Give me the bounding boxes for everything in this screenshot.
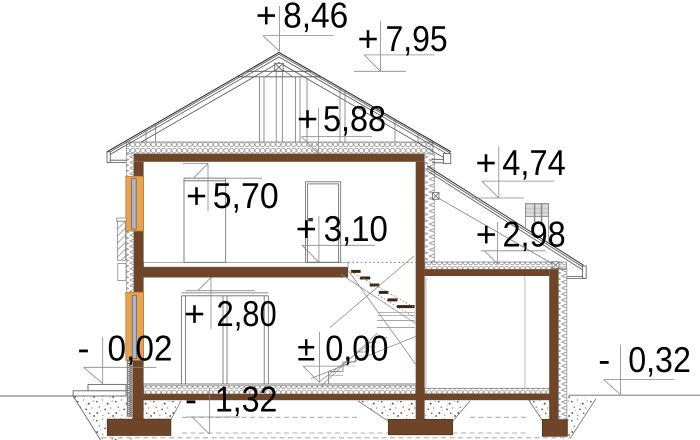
svg-text:+: + <box>358 18 379 59</box>
svg-text:0,00: 0,00 <box>325 327 388 368</box>
svg-text:+: + <box>184 293 205 334</box>
svg-text:5,88: 5,88 <box>323 98 386 139</box>
svg-text:1,32: 1,32 <box>215 379 277 420</box>
svg-text:-: - <box>185 379 197 420</box>
svg-text:+: + <box>297 98 318 139</box>
svg-text:2,80: 2,80 <box>217 293 277 334</box>
svg-text:5,70: 5,70 <box>213 175 279 216</box>
svg-text:-: - <box>78 328 90 369</box>
svg-text:±: ± <box>297 327 315 368</box>
svg-text:+: + <box>296 208 317 249</box>
svg-text:-: - <box>598 339 610 380</box>
svg-text:4,74: 4,74 <box>502 142 565 183</box>
svg-text:2,98: 2,98 <box>503 214 566 255</box>
svg-text:8,46: 8,46 <box>283 0 348 36</box>
svg-text:0,02: 0,02 <box>108 328 173 369</box>
svg-text:+: + <box>476 142 497 183</box>
svg-text:+: + <box>256 0 277 36</box>
svg-text:3,10: 3,10 <box>324 208 388 249</box>
svg-text:+: + <box>476 214 497 255</box>
svg-text:+: + <box>186 175 207 216</box>
svg-text:0,32: 0,32 <box>628 339 691 380</box>
svg-text:7,95: 7,95 <box>386 18 448 59</box>
